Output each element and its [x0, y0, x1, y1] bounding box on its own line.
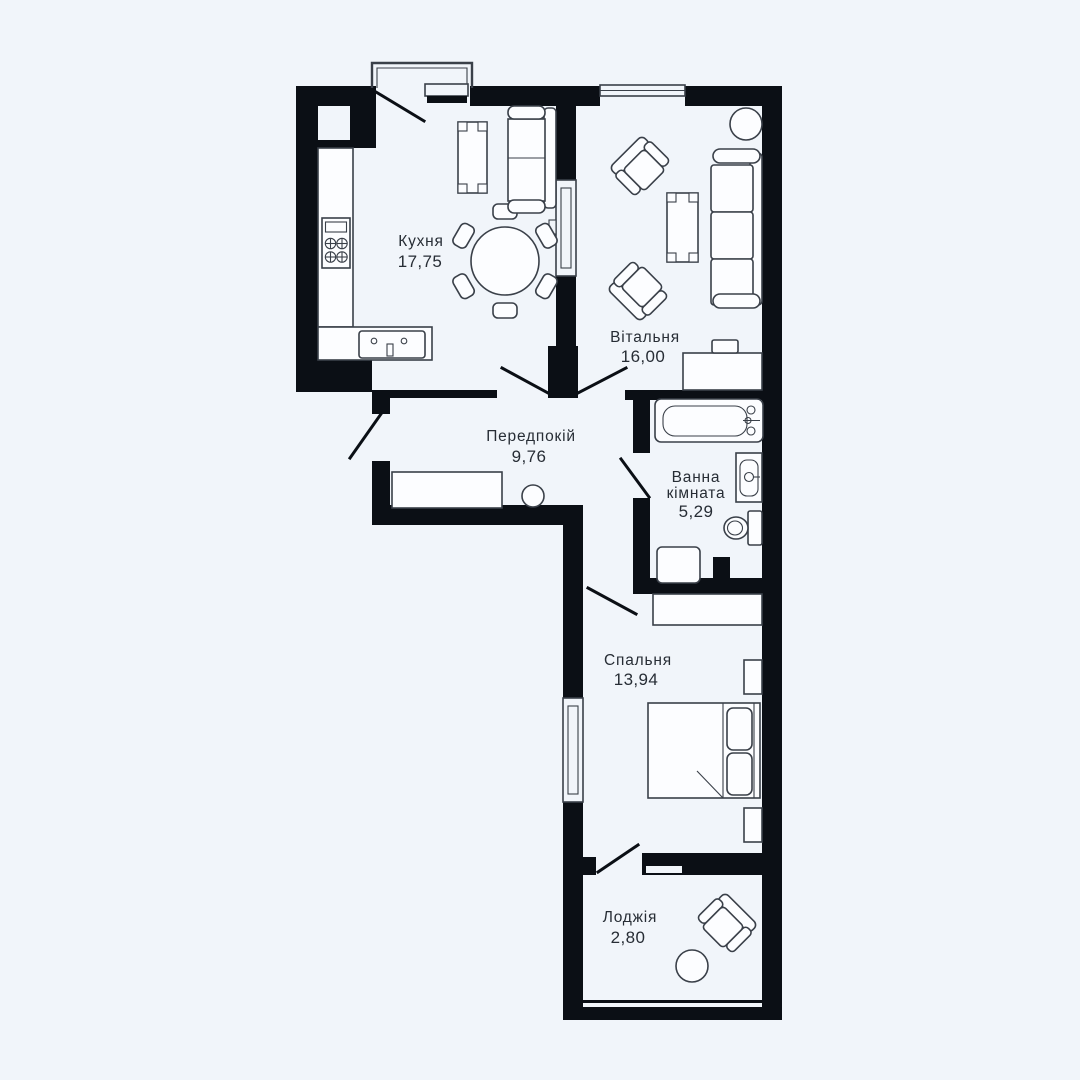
loggia-table	[676, 950, 708, 982]
bathtub-icon	[655, 399, 763, 442]
floor-plan-canvas: Кухня 17,75 Вітальня 16,00	[0, 0, 1080, 1080]
nightstand	[744, 660, 762, 694]
bedroom-area: 13,94	[614, 670, 659, 689]
nightstand	[744, 808, 762, 842]
living-room-window-icon	[600, 85, 685, 96]
room-hallway: Передпокій 9,76	[392, 428, 576, 508]
bathroom-door-swing	[621, 459, 649, 497]
loggia-glazing-line	[583, 1003, 762, 1007]
kitchen-sofa	[508, 106, 556, 213]
room-living: Вітальня 16,00	[606, 108, 762, 390]
pouf-icon	[522, 485, 544, 507]
kitchen-label: Кухня	[398, 233, 443, 250]
armchair	[608, 134, 672, 198]
loggia-window-inset	[646, 866, 682, 873]
bathroom-label-line2: кімната	[667, 485, 726, 502]
armchair	[606, 259, 670, 323]
plant-icon	[730, 108, 762, 140]
stove-icon	[322, 218, 350, 268]
loggia-area: 2,80	[611, 928, 646, 947]
bathroom-area: 5,29	[679, 502, 714, 521]
bedroom-door-swing	[588, 588, 636, 614]
kitchen-window-icon	[425, 84, 468, 103]
hall-wardrobe	[392, 472, 502, 508]
living-area: 16,00	[621, 347, 666, 366]
kitchen-door-swing	[502, 368, 548, 393]
washbasin-icon	[736, 453, 762, 502]
sofa	[711, 149, 762, 308]
floor-plan-svg: Кухня 17,75 Вітальня 16,00	[0, 0, 1080, 1080]
room-loggia: Лоджія 2,80	[603, 891, 759, 982]
sink-icon	[359, 331, 425, 358]
side-table	[458, 122, 487, 193]
balcony-door-swing	[376, 92, 424, 121]
room-bedroom: Спальня 13,94	[604, 594, 762, 842]
loggia-door-swing	[598, 845, 638, 872]
bedroom-window-icon	[563, 698, 583, 802]
dining-table	[451, 204, 559, 318]
bed	[648, 703, 760, 798]
entrance-door-swing	[350, 414, 381, 458]
bedroom-wardrobe	[653, 594, 762, 625]
bedroom-label: Спальня	[604, 652, 672, 669]
loggia-label: Лоджія	[603, 909, 658, 926]
room-bathroom: Ванна кімната 5,29	[655, 399, 763, 583]
tv-stand	[683, 340, 762, 390]
bathroom-label-line1: Ванна	[672, 469, 721, 486]
hallway-label: Передпокій	[486, 428, 576, 445]
hallway-area: 9,76	[512, 447, 547, 466]
loggia-armchair	[695, 891, 759, 955]
washing-machine-icon	[657, 547, 700, 583]
coffee-table	[667, 193, 698, 262]
toilet-icon	[724, 511, 762, 545]
kitchen-area: 17,75	[398, 252, 443, 271]
living-label: Вітальня	[610, 329, 680, 346]
living-room-door-swing	[578, 368, 626, 393]
